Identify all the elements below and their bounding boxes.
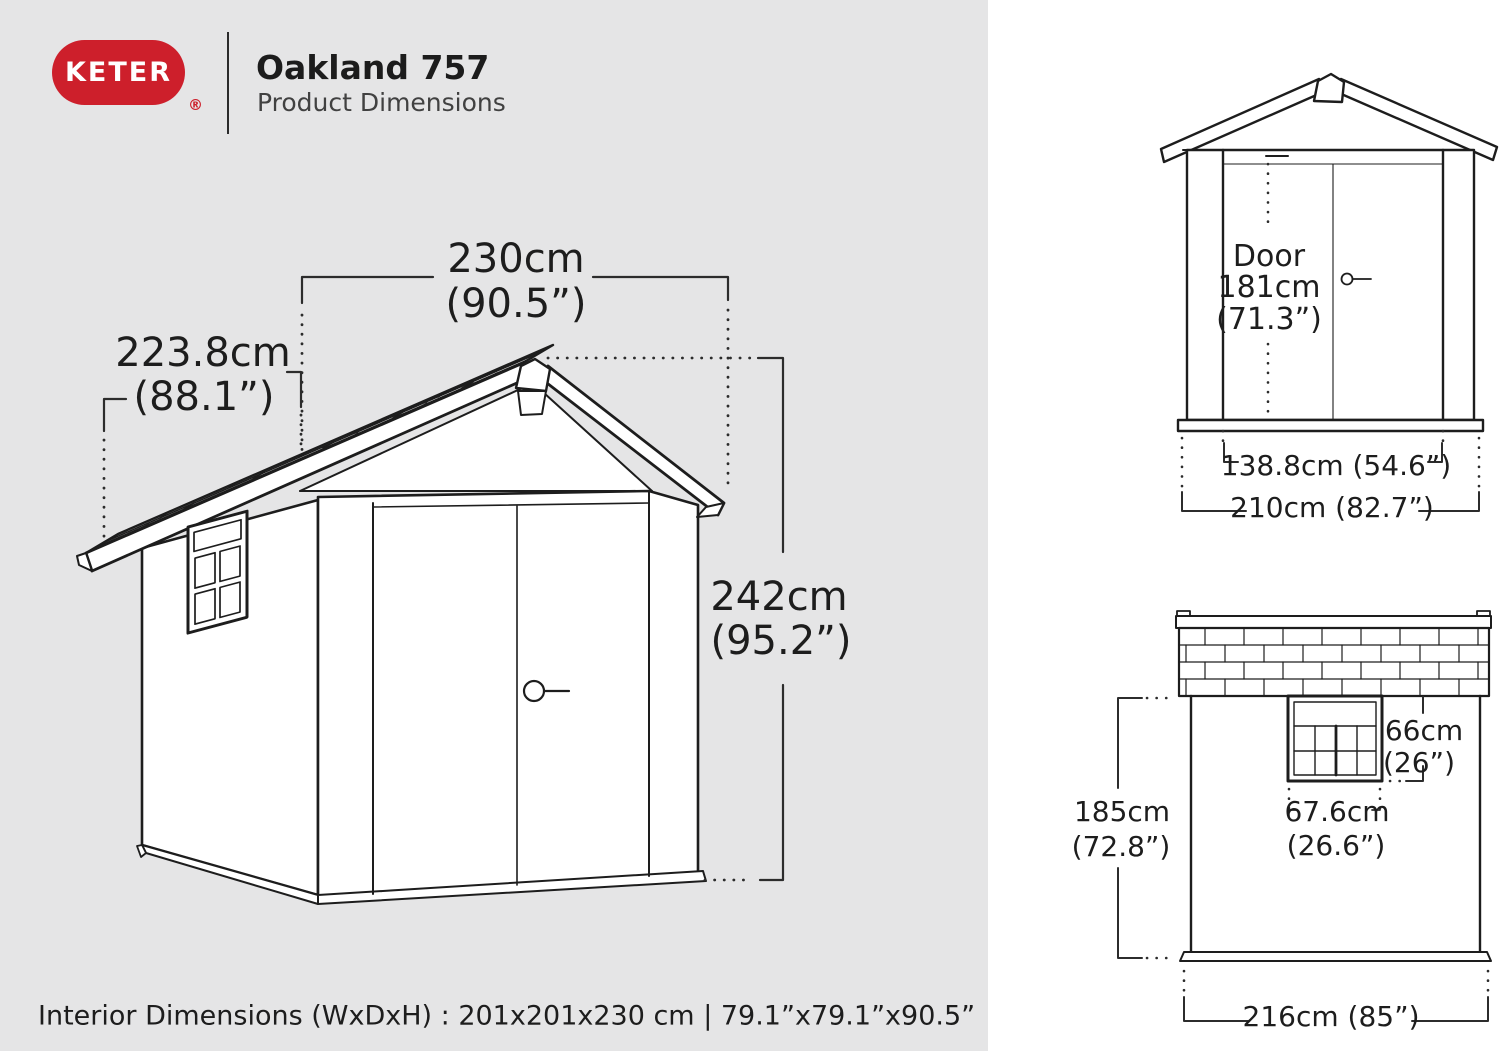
side-view-drawing [1176,611,1491,961]
wall-height-cm-label: 185cm [1074,798,1170,826]
shed-isometric-drawing [77,345,724,904]
header-divider [227,32,229,134]
registered-trademark-icon: ® [188,96,203,114]
door-label: Door [1233,242,1305,272]
front-overall-width-label: 210cm (82.7”) [1230,494,1434,522]
main-width-cm-label: 230cm [447,239,584,279]
page-title: Oakland 757 [256,48,489,87]
line-art [0,0,1500,1051]
page-subtitle: Product Dimensions [257,88,506,117]
product-dimensions-sheet: KETER ® Oakland 757 Product Dimensions 2… [0,0,1500,1051]
main-height-cm-label: 242cm [710,577,847,617]
window-width-in-label: (26.6”) [1287,832,1386,860]
side-window [188,511,247,633]
window-height-in-label: (26”) [1383,749,1455,777]
window-height-cm-label: 66cm [1385,717,1463,745]
side-overall-width-label: 216cm (85”) [1243,1003,1420,1031]
door-opening-width-label: 138.8cm (54.6”) [1221,452,1451,480]
main-depth-cm-label: 223.8cm [115,333,290,373]
wall-height-in-label: (72.8”) [1072,833,1171,861]
door-height-in-label: (71.3”) [1216,305,1322,335]
main-width-in-label: (90.5”) [446,284,587,324]
keter-logo-text: KETER [65,57,172,88]
side-view-window [1288,696,1382,781]
keter-logo: KETER [52,40,185,105]
door-height-cm-label: 181cm [1218,273,1321,303]
main-depth-in-label: (88.1”) [134,377,275,417]
main-height-in-label: (95.2”) [711,621,852,661]
window-width-cm-label: 67.6cm [1284,798,1389,826]
front-view-drawing [1161,74,1497,431]
interior-dimensions-text: Interior Dimensions (WxDxH) : 201x201x23… [38,1003,975,1030]
